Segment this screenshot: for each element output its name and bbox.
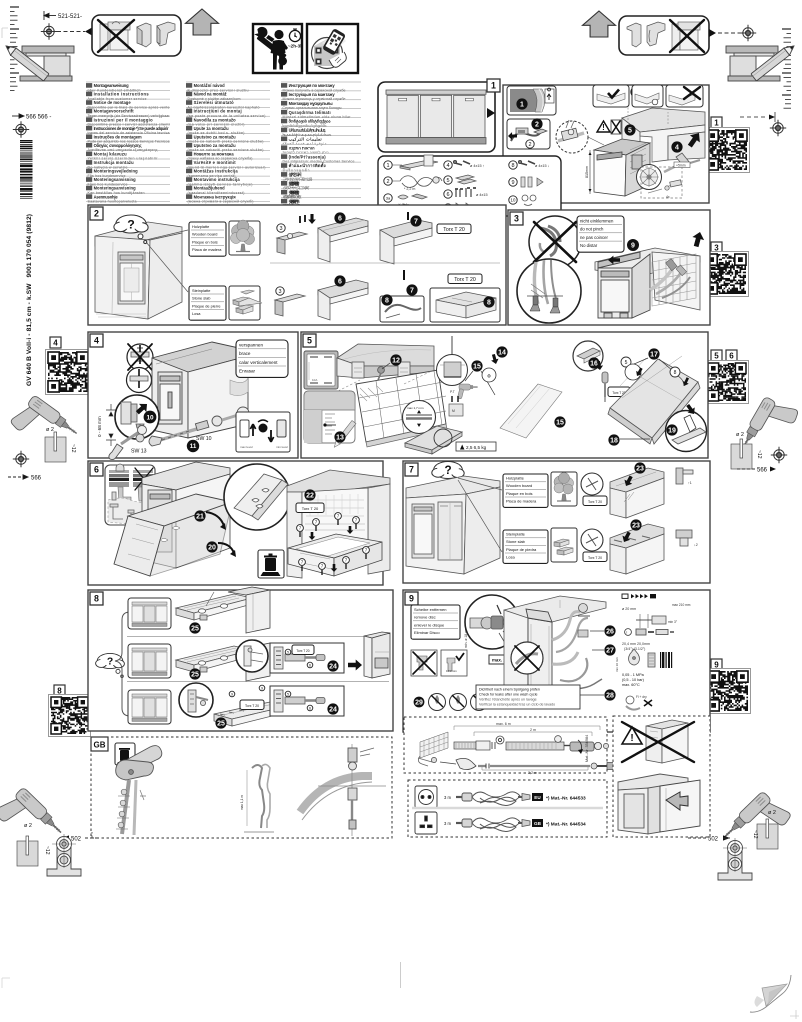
svg-text:Holzplatte: Holzplatte [192, 224, 209, 229]
svg-text:ø 2: ø 2 [768, 810, 776, 816]
svg-text:2: 2 [528, 142, 531, 148]
svg-text:18: 18 [610, 438, 618, 445]
svg-text:Placa de madera: Placa de madera [192, 247, 222, 252]
svg-text:24: 24 [329, 707, 337, 714]
svg-text:12: 12 [392, 358, 400, 365]
svg-text:คำแนะนำการติดตั้ง: คำแนะนำการติดตั้ง [289, 161, 326, 168]
svg-text:No distar: No distar [580, 243, 598, 248]
svg-text:502: 502 [71, 837, 82, 843]
svg-text:9: 9 [261, 686, 263, 690]
svg-text:Stone slab: Stone slab [506, 539, 526, 544]
svg-text:Check for leaks after one wash: Check for leaks after one wash cycle [479, 693, 538, 697]
svg-text:安装说明书: 安装说明书 [289, 198, 300, 204]
svg-text:0 - 68 mm: 0 - 68 mm [97, 416, 102, 437]
svg-text:~12: ~12 [70, 444, 76, 453]
svg-text:Placa de madera: Placa de madera [506, 498, 537, 503]
svg-text:~12: ~12 [756, 450, 762, 459]
svg-text:Plaque de piedra: Plaque de piedra [506, 547, 537, 552]
svg-text:Scheibe entfernen: Scheibe entfernen [414, 607, 446, 612]
svg-text:3: 3 [278, 289, 281, 295]
svg-text:6: 6 [338, 279, 342, 286]
svg-text:15: 15 [556, 420, 564, 427]
svg-text:ø 20 mm: ø 20 mm [622, 607, 636, 611]
svg-text:ø 4x15: ø 4x15 [476, 193, 488, 197]
svg-text:2: 2 [386, 179, 389, 185]
svg-text:9: 9 [409, 594, 414, 604]
svg-text:Steinplatte: Steinplatte [506, 532, 526, 537]
svg-text:Plaque en bois: Plaque en bois [506, 491, 532, 496]
svg-text:min 3°: min 3° [668, 620, 678, 624]
svg-text:?: ? [107, 657, 113, 668]
svg-text:Torx T 20: Torx T 20 [588, 556, 602, 560]
svg-text:Losa: Losa [506, 554, 515, 559]
svg-text:Torx T 20: Torx T 20 [443, 227, 465, 233]
svg-text:8: 8 [385, 298, 389, 305]
svg-text:1: 1 [714, 119, 719, 128]
svg-text:6: 6 [338, 216, 342, 223]
svg-text:14: 14 [498, 350, 506, 357]
svg-text:~12: ~12 [44, 846, 50, 855]
svg-text:11: 11 [190, 443, 197, 450]
svg-text:2,2 m: 2,2 m [528, 771, 537, 775]
svg-text:815mm: 815mm [585, 166, 589, 178]
svg-text:1: 1 [491, 81, 496, 91]
svg-text:9: 9 [231, 692, 233, 696]
svg-text:GB: GB [534, 821, 542, 826]
svg-text:Οδηγίες συναρμολόγησης: Οδηγίες συναρμολόγησης [94, 143, 142, 148]
svg-text:566 566 -: 566 566 - [26, 115, 51, 121]
svg-text:22: 22 [306, 493, 314, 500]
svg-text:SW 10: SW 10 [196, 436, 212, 442]
svg-text:5: 5 [714, 352, 719, 361]
svg-text:*) Mat.-Nr. 644534: *) Mat.-Nr. 644534 [546, 822, 586, 828]
svg-text:101/min: 101/min [446, 669, 457, 673]
svg-text:remove disc: remove disc [414, 615, 436, 620]
svg-text:ø 2: ø 2 [736, 432, 744, 438]
svg-text:1: 1 [386, 163, 389, 169]
svg-text:23: 23 [632, 523, 640, 530]
svg-text:↑1: ↑1 [688, 481, 692, 485]
svg-text:M: M [452, 409, 455, 413]
svg-text:Torx T 20: Torx T 20 [296, 649, 309, 653]
svg-text:25: 25 [217, 721, 225, 728]
svg-text:10: 10 [511, 198, 516, 203]
svg-text:max 1,7 mm: max 1,7 mm [407, 406, 424, 410]
svg-text:6: 6 [94, 465, 99, 475]
svg-text:21: 21 [196, 514, 204, 521]
svg-text:521-521-: 521-521- [58, 14, 82, 20]
svg-text:6: 6 [446, 192, 449, 198]
svg-text:do not pinch: do not pinch [580, 227, 604, 232]
svg-text:安裝說明書: 安裝說明書 [289, 189, 300, 195]
svg-text:Vérifiez l'étanchéité après un: Vérifiez l'étanchéité après un lavage [479, 698, 537, 702]
svg-text:566: 566 [31, 476, 42, 482]
svg-text:Stone slab: Stone slab [192, 296, 210, 301]
svg-text:Losa: Losa [192, 311, 201, 316]
svg-text:Fl + dry: Fl + dry [636, 695, 647, 699]
svg-text:~12: ~12 [752, 830, 758, 839]
svg-text:Plaque en bois: Plaque en bois [192, 239, 218, 244]
svg-text:据付説明書: 据付説明書 [289, 180, 300, 186]
svg-text:19: 19 [668, 428, 676, 435]
svg-text:Torx T 20: Torx T 20 [454, 277, 476, 283]
svg-text:* 2,2 m: * 2,2 m [404, 187, 415, 191]
svg-text:0,05 - 1 MPa: 0,05 - 1 MPa [622, 673, 645, 677]
svg-text:↓2: ↓2 [694, 543, 698, 547]
svg-text:20: 20 [208, 545, 216, 552]
svg-text:28: 28 [606, 693, 614, 700]
svg-text:3 m: 3 m [444, 795, 451, 800]
svg-text:ø 2: ø 2 [24, 823, 32, 829]
svg-text:2 m: 2 m [530, 728, 536, 732]
svg-text:7: 7 [410, 288, 414, 295]
svg-text:566: 566 [757, 468, 768, 474]
svg-text:6: 6 [309, 663, 311, 667]
svg-text:Torx T 20: Torx T 20 [588, 500, 602, 504]
svg-text:7: 7 [409, 465, 414, 475]
svg-text:8: 8 [511, 163, 514, 169]
svg-text:min level: min level [276, 445, 288, 449]
svg-text:6: 6 [309, 706, 311, 710]
svg-text:5: 5 [625, 360, 628, 366]
svg-text:ø 4x15 ↑: ø 4x15 ↑ [470, 164, 485, 168]
svg-text:25: 25 [191, 672, 199, 679]
svg-text:?: ? [444, 464, 451, 477]
svg-text:GV 640 B Voll-i - 81,5 cm - k.: GV 640 B Voll-i - 81,5 cm - k.SW 9001 17… [26, 214, 33, 386]
svg-text:Plaque de pierre: Plaque de pierre [192, 303, 221, 308]
svg-text:GB: GB [94, 741, 106, 750]
svg-text:!: ! [630, 733, 633, 744]
svg-text:15: 15 [473, 364, 481, 371]
svg-text:27: 27 [606, 648, 614, 655]
svg-text:Dichtheit nach einem Spülgang: Dichtheit nach einem Spülgang prüfen [479, 688, 540, 692]
svg-text:10A: 10A [312, 378, 317, 382]
svg-text:max level: max level [240, 445, 253, 449]
svg-text:Eliminar Disco: Eliminar Disco [414, 630, 440, 635]
svg-text:enlever le disque: enlever le disque [414, 622, 445, 627]
svg-text:4: 4 [94, 336, 99, 346]
svg-text:3: 3 [279, 226, 282, 232]
svg-text:5: 5 [287, 650, 289, 654]
svg-text:nicht einklemmen: nicht einklemmen [580, 218, 614, 223]
svg-text:24: 24 [329, 664, 337, 671]
svg-text:verspannen: verspannen [239, 343, 263, 348]
svg-text:2,5 6,5 kg: 2,5 6,5 kg [466, 445, 487, 450]
svg-text:20,4 mm 20,0mm: 20,4 mm 20,0mm [622, 642, 650, 646]
svg-text:3: 3 [514, 214, 519, 224]
svg-text:2: 2 [94, 209, 99, 219]
svg-text:9: 9 [631, 243, 635, 250]
svg-text:Wooden board: Wooden board [506, 483, 532, 488]
svg-text:ne pas coincer: ne pas coincer [580, 235, 609, 240]
svg-text:502: 502 [708, 837, 719, 843]
svg-text:4: 4 [446, 163, 449, 169]
svg-text:4: 4 [675, 145, 679, 152]
svg-text:calar verticalement: calar verticalement [239, 360, 278, 365]
svg-text:29: 29 [415, 700, 423, 707]
svg-text:min 10 mm: min 10 mm [615, 657, 619, 672]
svg-text:설치 안내서: 설치 안내서 [289, 171, 302, 177]
svg-text:23: 23 [636, 466, 644, 473]
svg-text:max. 60°C: max. 60°C [622, 683, 640, 687]
svg-text:5: 5 [446, 178, 449, 184]
svg-text:ø 2: ø 2 [46, 427, 54, 433]
svg-text:P.T: P.T [450, 390, 455, 394]
svg-text:8: 8 [674, 370, 677, 376]
svg-text:Holzplatte: Holzplatte [506, 476, 525, 481]
svg-text:3 m: 3 m [444, 821, 451, 826]
svg-text:!: ! [602, 123, 605, 132]
svg-text:brace: brace [239, 351, 251, 356]
svg-text:Uputstvo za montažu: Uputstvo za montažu [194, 143, 236, 148]
svg-text:8: 8 [94, 594, 99, 604]
svg-text:max 210 mm: max 210 mm [672, 603, 691, 607]
svg-text:max. 6 m: max. 6 m [496, 722, 511, 726]
svg-text:4: 4 [53, 339, 58, 348]
svg-text:5: 5 [307, 336, 312, 346]
svg-text:13: 13 [336, 435, 344, 442]
svg-text:9: 9 [511, 180, 514, 186]
svg-text:1: 1 [520, 102, 524, 109]
svg-text:5: 5 [287, 692, 289, 696]
svg-text:EU: EU [534, 795, 541, 800]
svg-text:(0,5 - 10 bar): (0,5 - 10 bar) [622, 678, 645, 682]
svg-text:*) Mat.-Nr. 644533: *) Mat.-Nr. 644533 [546, 796, 586, 802]
svg-text:Torx T 20: Torx T 20 [245, 704, 259, 708]
svg-text:Mat.-Nr. 358984: Mat.-Nr. 358984 [585, 735, 589, 762]
svg-text:ø 4x15 ↓: ø 4x15 ↓ [535, 164, 550, 168]
svg-text:+5mm: +5mm [676, 163, 686, 167]
svg-text:25: 25 [191, 626, 199, 633]
svg-text:Enrasar: Enrasar [239, 368, 256, 373]
svg-text:Wooden board: Wooden board [192, 232, 217, 237]
svg-text:7: 7 [414, 219, 418, 226]
svg-text:8: 8 [487, 300, 491, 307]
svg-text:4x: 4x [666, 195, 670, 199]
svg-text:?: ? [127, 217, 135, 231]
svg-text:~2h-3h: ~2h-3h [288, 44, 303, 49]
svg-text:Torx T 20: Torx T 20 [302, 506, 319, 511]
svg-text:2: 2 [535, 122, 539, 129]
svg-text:max 1,1 m: max 1,1 m [240, 795, 244, 810]
svg-text:26: 26 [606, 629, 614, 636]
svg-text:17: 17 [650, 352, 658, 359]
svg-text:3a: 3a [386, 195, 391, 200]
svg-text:SW 13: SW 13 [131, 449, 147, 455]
svg-text:5: 5 [628, 128, 632, 135]
svg-text:Verificar la estanqueidad tras: Verificar la estanqueidad tras un ciclo … [479, 703, 555, 707]
svg-text:6: 6 [729, 352, 734, 361]
svg-text:10: 10 [146, 414, 154, 421]
svg-text:Steinplatte: Steinplatte [192, 288, 210, 293]
